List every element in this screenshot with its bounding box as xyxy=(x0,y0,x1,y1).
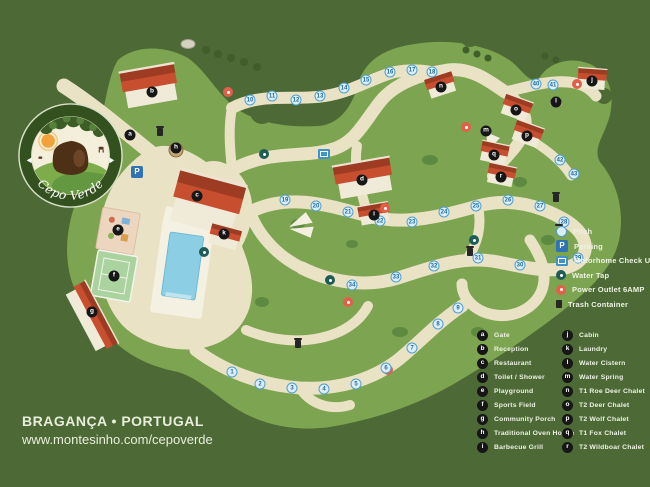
legend-place-label: Water Spring xyxy=(579,374,623,381)
legend-amenity-icon: P xyxy=(556,240,568,252)
legend-item: c Restaurant xyxy=(477,358,574,369)
legend-place-label: Laundry xyxy=(579,346,607,353)
legend-amenity-label: Water Tap xyxy=(572,271,609,280)
legend-amenity-icon xyxy=(556,256,568,266)
legend-places-column1: a Gate b Reception c Restaurant d Toilet… xyxy=(477,330,574,453)
legend-place-label: T2 Wolf Chalet xyxy=(579,416,629,423)
legend-letter-bullet: p xyxy=(562,414,573,425)
facility-marker: a xyxy=(125,130,136,141)
legend-amenity-label: Power Outlet 6AMP xyxy=(572,285,645,294)
legend-amenities: Pitch P Parking Motorhome Check Up Water… xyxy=(556,226,650,310)
legend-item: b Reception xyxy=(477,344,574,355)
legend-place-label: Reception xyxy=(494,346,529,353)
legend-item: g Community Porch xyxy=(477,414,574,425)
facility-marker: m xyxy=(481,126,492,137)
legend-item: i Barbecue Grill xyxy=(477,442,574,453)
legend-item: Trash Container xyxy=(556,299,650,310)
legend-letter-bullet: n xyxy=(562,386,573,397)
legend-place-label: T1 Roe Deer Chalet xyxy=(579,388,645,395)
legend-place-label: Cabin xyxy=(579,332,599,339)
legend-place-label: Gate xyxy=(494,332,510,339)
legend-item: Motorhome Check Up xyxy=(556,255,650,266)
legend-letter-bullet: j xyxy=(562,330,573,341)
website-url: www.montesinho.com/cepoverde xyxy=(22,432,213,447)
legend-item: Power Outlet 6AMP xyxy=(556,284,650,295)
legend-place-label: Toilet / Shower xyxy=(494,374,545,381)
legend-amenity-label: Trash Container xyxy=(568,300,628,309)
legend-item: m Water Spring xyxy=(562,372,645,383)
campsite-map: P 12345678910111213141516171819202122232… xyxy=(0,0,650,487)
legend-amenity-icon xyxy=(556,270,566,280)
location-text: BRAGANÇA • PORTUGAL xyxy=(22,413,213,429)
facility-marker: e xyxy=(113,225,124,236)
legend-place-label: T2 Wildboar Chalet xyxy=(579,444,644,451)
legend-letter-bullet: i xyxy=(477,442,488,453)
legend-item: o T2 Deer Chalet xyxy=(562,400,645,411)
legend-letter-bullet: k xyxy=(562,344,573,355)
legend-letter-bullet: b xyxy=(477,344,488,355)
legend-item: d Toilet / Shower xyxy=(477,372,574,383)
facility-marker: o xyxy=(511,105,522,116)
legend-letter-bullet: m xyxy=(562,372,573,383)
legend-amenity-label: Pitch xyxy=(573,227,592,236)
legend-place-label: Playground xyxy=(494,388,533,395)
legend-item: l Water Cistern xyxy=(562,358,645,369)
legend-place-label: Community Porch xyxy=(494,416,556,423)
legend-letter-bullet: o xyxy=(562,400,573,411)
legend-item: f Sports Field xyxy=(477,400,574,411)
legend-letter-bullet: c xyxy=(477,358,488,369)
legend-places-column2: j Cabin k Laundry l Water Cistern m Wate… xyxy=(562,330,645,453)
legend-letter-bullet: l xyxy=(562,358,573,369)
logo-badge: Cepo Verde xyxy=(17,102,124,209)
legend-item: Pitch xyxy=(556,226,650,237)
legend-amenity-icon xyxy=(556,285,566,295)
legend-place-label: T2 Deer Chalet xyxy=(579,402,629,409)
legend-letter-bullet: e xyxy=(477,386,488,397)
legend-amenity-label: Motorhome Check Up xyxy=(574,256,650,265)
legend-item: r T2 Wildboar Chalet xyxy=(562,442,645,453)
legend-place-label: Sports Field xyxy=(494,402,536,409)
facility-marker: d xyxy=(357,175,368,186)
legend-item: j Cabin xyxy=(562,330,645,341)
legend-place-label: Water Cistern xyxy=(579,360,626,367)
legend-amenity-icon xyxy=(556,300,562,308)
facility-marker: i xyxy=(369,210,380,221)
facility-marker: k xyxy=(219,229,230,240)
facility-marker: g xyxy=(87,307,98,318)
facility-marker: p xyxy=(522,131,533,142)
legend-letter-bullet: h xyxy=(477,428,488,439)
legend-amenity-icon xyxy=(556,226,567,237)
legend-item: h Traditional Oven House xyxy=(477,428,574,439)
facility-marker: j xyxy=(587,76,598,87)
facility-marker: f xyxy=(109,271,120,282)
legend-place-label: Barbecue Grill xyxy=(494,444,543,451)
legend-amenity-label: Parking xyxy=(574,242,603,251)
facility-marker: r xyxy=(496,172,507,183)
legend-item: a Gate xyxy=(477,330,574,341)
legend-place-label: Restaurant xyxy=(494,360,532,367)
legend-item: P Parking xyxy=(556,241,650,252)
legend-place-label: T1 Fox Chalet xyxy=(579,430,626,437)
legend-item: Water Tap xyxy=(556,270,650,281)
legend-item: k Laundry xyxy=(562,344,645,355)
facility-marker: c xyxy=(192,191,203,202)
legend-item: p T2 Wolf Chalet xyxy=(562,414,645,425)
legend-item: n T1 Roe Deer Chalet xyxy=(562,386,645,397)
facility-marker: h xyxy=(171,143,182,154)
legend-item: q T1 Fox Chalet xyxy=(562,428,645,439)
facility-marker: l xyxy=(551,97,562,108)
facility-marker: q xyxy=(489,150,500,161)
facility-marker: b xyxy=(147,87,158,98)
legend-letter-bullet: r xyxy=(562,442,573,453)
footer: BRAGANÇA • PORTUGAL www.montesinho.com/c… xyxy=(22,413,213,447)
legend-letter-bullet: d xyxy=(477,372,488,383)
legend-letter-bullet: g xyxy=(477,414,488,425)
legend-letter-bullet: f xyxy=(477,400,488,411)
legend-item: e Playground xyxy=(477,386,574,397)
legend-letter-bullet: a xyxy=(477,330,488,341)
legend-letter-bullet: q xyxy=(562,428,573,439)
facility-marker: n xyxy=(436,82,447,93)
